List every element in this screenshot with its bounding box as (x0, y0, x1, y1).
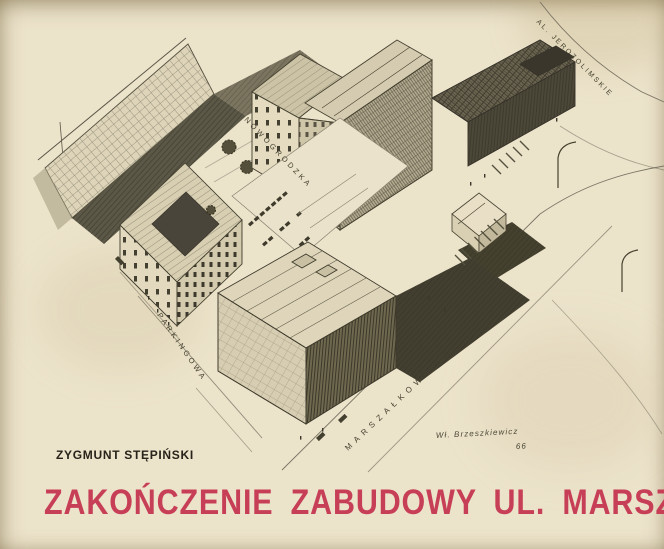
street-lamps (558, 142, 638, 292)
svg-text:Wł. Brzeszkiewicz: Wł. Brzeszkiewicz (436, 427, 519, 440)
street-label-parkingowa: PARKINGOWA (155, 311, 208, 383)
author-name: ZYGMUNT STĘPIŃSKI (56, 448, 194, 462)
architectural-drawing: NOWOGRODZKA MARSZAŁKOWSKA PARKINGOWA AL.… (0, 0, 664, 474)
building-foreground-slab (218, 242, 530, 424)
article-title: ZAKOŃCZENIE ZABUDOWY UL. MARSZAŁKOWSKIEJ (44, 483, 664, 523)
scanned-magazine-page: NOWOGRODZKA MARSZAŁKOWSKA PARKINGOWA AL.… (0, 0, 664, 549)
artist-signature: Wł. Brzeszkiewicz 66 (436, 427, 528, 451)
building-dark-slab (432, 40, 575, 166)
svg-text:66: 66 (516, 441, 528, 451)
